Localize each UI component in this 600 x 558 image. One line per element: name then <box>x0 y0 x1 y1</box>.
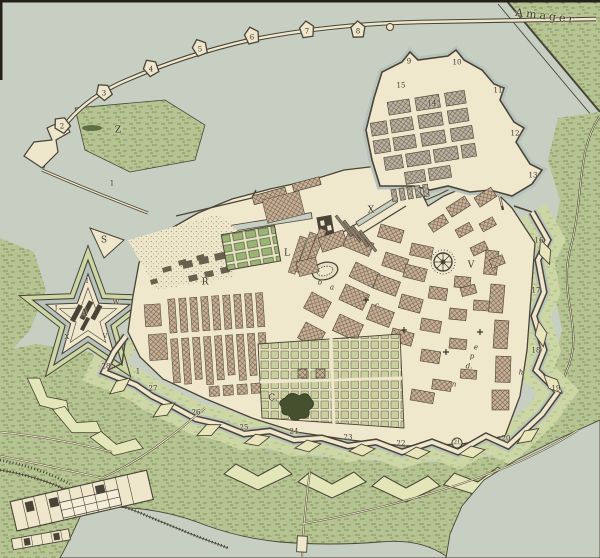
historic-city-map: AmagerZXVSC.RLAIJWXV12345678910111213141… <box>0 0 600 558</box>
frame-edge-top <box>0 0 600 3</box>
parcel-garden <box>258 334 404 428</box>
bridge <box>297 536 308 553</box>
small-redoubt <box>387 24 394 31</box>
map-canvas <box>0 0 600 558</box>
frame-edge-left <box>0 0 3 80</box>
